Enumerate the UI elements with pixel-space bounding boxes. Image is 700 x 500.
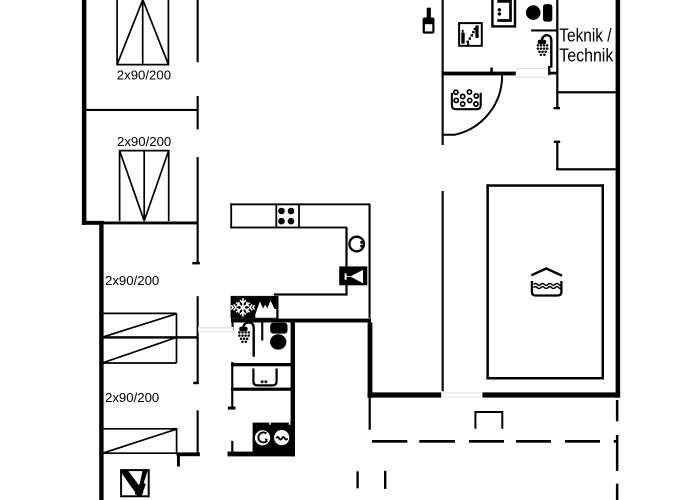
svg-text:2x90/200: 2x90/200 (117, 67, 171, 82)
svg-text:Teknik /: Teknik / (559, 25, 611, 45)
svg-text:Technik: Technik (559, 45, 614, 65)
svg-text:2x90/200: 2x90/200 (105, 273, 159, 288)
svg-text:2x90/200: 2x90/200 (117, 134, 171, 149)
svg-text:2x90/200: 2x90/200 (105, 390, 159, 405)
